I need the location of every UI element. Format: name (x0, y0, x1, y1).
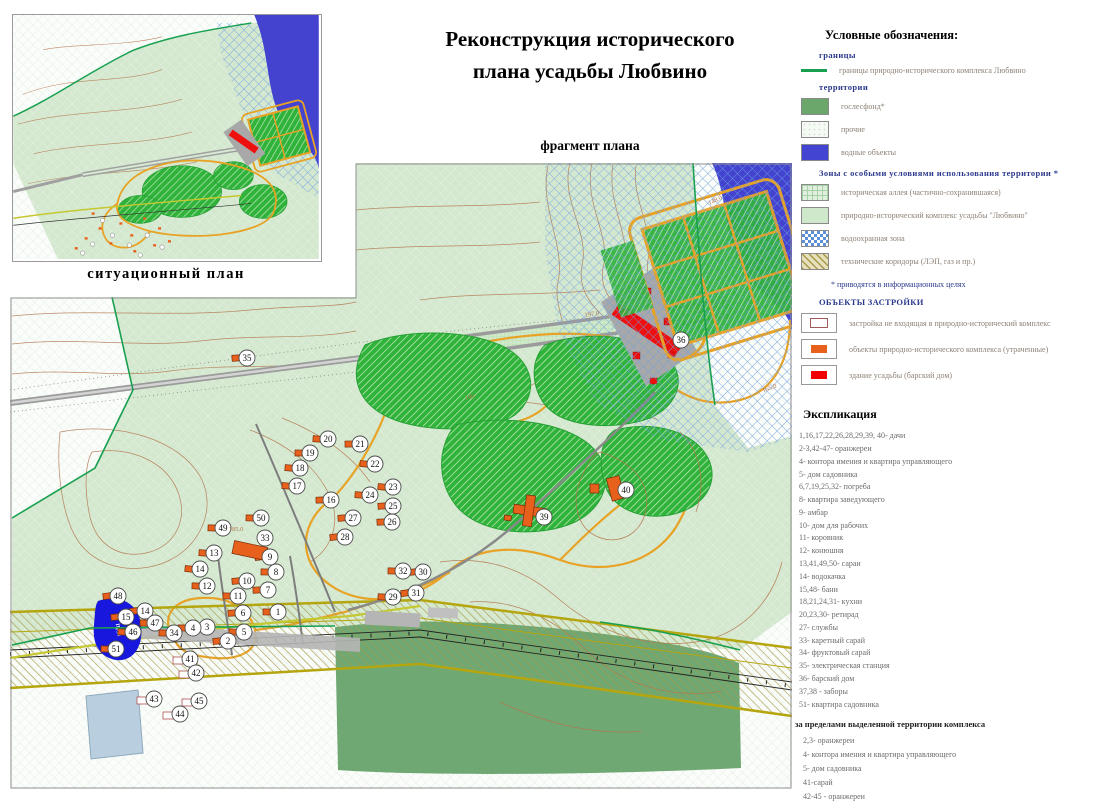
map-marker-1: 1 (270, 604, 286, 620)
map-marker-43: 43 (146, 691, 162, 707)
marker-number: 35 (243, 353, 253, 363)
marker-number: 30 (419, 567, 429, 577)
marker-number: 36 (677, 335, 687, 345)
explication-item: 37,38 - заборы (799, 688, 1097, 696)
legend-item: объекты природно-исторического комплекса… (801, 339, 1097, 359)
marker-number: 40 (622, 485, 632, 495)
legend-section-heading: территории (819, 82, 1097, 92)
marker-number: 13 (210, 548, 220, 558)
legend-section-heading: границы (819, 50, 1097, 60)
marker-number: 3 (205, 622, 210, 632)
marker-number: 17 (293, 481, 303, 491)
map-marker-6: 6 (235, 605, 251, 621)
explication-item: 2-3,42-47- оранжереи (799, 445, 1097, 453)
page-title-line1: Реконструкция исторического (370, 24, 810, 56)
legend-swatch-box-red (801, 365, 837, 385)
marker-number: 16 (327, 495, 337, 505)
map-marker-17: 17 (289, 478, 305, 494)
marker-number: 23 (389, 482, 399, 492)
map-marker-22: 22 (367, 456, 383, 472)
marker-number: 31 (412, 588, 421, 598)
explication-outside-item: 42-45 - оранжереи (803, 793, 1097, 801)
map-marker-42: 42 (188, 665, 204, 681)
marker-number: 11 (234, 591, 243, 601)
map-marker-47: 47 (147, 615, 163, 631)
legend-item: технические коридоры (ЛЭП, газ и пр.) (801, 253, 1097, 270)
legend-item: границы природно-исторического комплекса… (801, 66, 1097, 75)
legend-swatch-box-orange (801, 339, 837, 359)
legend-swatch-inner (810, 318, 828, 328)
legend-swatch-line-green (801, 69, 827, 72)
marker-number: 14 (196, 564, 206, 574)
map-marker-9: 9 (262, 549, 278, 565)
explication-item: 10- дом для рабочих (799, 522, 1097, 530)
legend-item: здание усадьбы (барский дом) (801, 365, 1097, 385)
marker-number: 49 (219, 523, 229, 533)
map-marker-30: 30 (415, 564, 431, 580)
marker-number: 50 (257, 513, 267, 523)
explication-item: 35- электрическая станция (799, 662, 1097, 670)
legend-item: застройка не входящая в природно-историч… (801, 313, 1097, 333)
legend-panel: Условные обозначения: границыграницы при… (795, 28, 1097, 806)
explication-items: 1,16,17,22,26,28,29,39, 40- дачи2-3,42-4… (795, 432, 1097, 709)
marker-number: 6 (241, 608, 246, 618)
marker-number: 8 (274, 567, 279, 577)
legend-swatch-box-outline (801, 313, 837, 333)
legend-item-label: здание усадьбы (барский дом) (849, 371, 952, 380)
page-title-line2: плана усадьбы Любвино (370, 56, 810, 88)
legend-item-label: объекты природно-исторического комплекса… (849, 345, 1048, 354)
map-marker-35: 35 (239, 350, 255, 366)
map-marker-48: 48 (110, 588, 126, 604)
parcel-square (86, 690, 143, 759)
explication-item: 1,16,17,22,26,28,29,39, 40- дачи (799, 432, 1097, 440)
legend-item-label: природно-исторический комплекс усадьбы "… (841, 211, 1028, 220)
legend-note: * приводятся в информационных целях (831, 280, 1097, 289)
explication-item: 20,23,30- ретирад (799, 611, 1097, 619)
page: { "title": {"line1":"Реконструкция истор… (0, 0, 1100, 792)
legend-swatch-hatch-olive (801, 253, 829, 270)
legend-item: водоохранная зона (801, 230, 1097, 247)
legend-swatch-inner (811, 345, 827, 353)
legend-swatch-checker-blue (801, 230, 829, 247)
map-marker-39: 39 (536, 509, 552, 525)
marker-number: 34 (170, 628, 180, 638)
marker-number: 18 (296, 463, 306, 473)
marker-number: 32 (399, 566, 408, 576)
legend-item-label: гослесфонд* (841, 102, 885, 111)
legend-objects-heading: ОБЪЕКТЫ ЗАСТРОЙКИ (819, 297, 1097, 307)
map-marker-28: 28 (337, 529, 353, 545)
contour-label: 185.0 (229, 526, 244, 533)
legend-swatch-grid-lightgreen (801, 184, 829, 201)
marker-number: 24 (366, 490, 376, 500)
map-marker-15: 15 (118, 609, 134, 625)
marker-number: 10 (243, 576, 253, 586)
marker-number: 9 (268, 552, 273, 562)
marker-number: 14 (141, 606, 151, 616)
map-marker-2: 2 (220, 633, 236, 649)
legend-item-label: водные объекты (841, 148, 896, 157)
legend-swatch-solid-blue (801, 144, 829, 161)
map-marker-8: 8 (268, 564, 284, 580)
explication-item: 33- каретный сарай (799, 637, 1097, 645)
marker-number: 42 (192, 668, 201, 678)
marker-number: 29 (389, 592, 399, 602)
legend-item-label: технические коридоры (ЛЭП, газ и пр.) (841, 257, 975, 266)
marker-number: 25 (389, 501, 399, 511)
legend-swatch-dotted-white (801, 121, 829, 138)
map-marker-7: 7 (260, 582, 276, 598)
map-marker-20: 20 (320, 431, 336, 447)
legend-section-heading: Зоны с особыми условиями использования т… (819, 168, 1097, 178)
legend-item: водные объекты (801, 144, 1097, 161)
explication-item: 51- квартира садовника (799, 701, 1097, 709)
map-marker-16: 16 (323, 492, 339, 508)
legend-item-label: застройка не входящая в природно-историч… (849, 319, 1051, 328)
explication-outside-item: 4- контора имения и квартира управляющег… (803, 751, 1097, 759)
marker-number: 1 (276, 607, 281, 617)
map-marker-19: 19 (302, 445, 318, 461)
map-marker-46: 46 (125, 624, 141, 640)
explication-item: 36- барский дом (799, 675, 1097, 683)
explication-item: 6,7,19,25,32- погреба (799, 483, 1097, 491)
main-map: Пруд (10, 163, 792, 789)
marker-number: 46 (129, 627, 139, 637)
explication-item: 13,41,49,50- сараи (799, 560, 1097, 568)
explication-item: 5- дом садовника (799, 471, 1097, 479)
legend-item-label: историческая аллея (частично-сохранившая… (841, 188, 1001, 197)
explication-outside-item: 41-сарай (803, 779, 1097, 787)
marker-number: 28 (341, 532, 351, 542)
map-marker-13: 13 (206, 545, 222, 561)
explication-item: 27- службы (799, 624, 1097, 632)
map-marker-36: 36 (673, 332, 689, 348)
marker-number: 7 (266, 585, 271, 595)
map-marker-31: 31 (408, 585, 424, 601)
legend-objects: застройка не входящая в природно-историч… (795, 313, 1097, 385)
marker-number: 5 (242, 627, 247, 637)
legend-item-label: границы природно-исторического комплекса… (839, 66, 1026, 75)
marker-number: 51 (112, 644, 121, 654)
explication-outside-item: 2,3- оранжереи (803, 737, 1097, 745)
map-marker-5: 5 (236, 624, 252, 640)
fragment-plan-label: фрагмент плана (430, 138, 750, 154)
marker-number: 47 (151, 618, 161, 628)
map-marker-29: 29 (385, 589, 401, 605)
explication-title: Экспликация (803, 407, 1097, 422)
map-marker-27: 27 (345, 510, 361, 526)
map-marker-32: 32 (395, 563, 411, 579)
marker-number: 43 (150, 694, 160, 704)
marker-number: 48 (114, 591, 124, 601)
explication-item: 8- квартира заведующего (799, 496, 1097, 504)
legend-title: Условные обозначения: (825, 28, 1097, 43)
marker-number: 15 (122, 612, 132, 622)
page-title: Реконструкция исторического плана усадьб… (370, 24, 810, 87)
marker-number: 45 (195, 696, 205, 706)
map-marker-21: 21 (352, 436, 368, 452)
map-marker-11: 11 (230, 588, 246, 604)
legend-item: природно-исторический комплекс усадьбы "… (801, 207, 1097, 224)
explication-outside-heading: за пределами выделенной территории компл… (795, 719, 1097, 729)
explication-item: 15,48- бани (799, 586, 1097, 594)
map-marker-4: 4 (185, 620, 201, 636)
explication-item: 4- контора имения и квартира управляющег… (799, 458, 1097, 466)
map-marker-23: 23 (385, 479, 401, 495)
legend-item-label: водоохранная зона (841, 234, 905, 243)
marker-number: 41 (186, 654, 195, 664)
legend-item: прочие (801, 121, 1097, 138)
explication-item: 12- конюшня (799, 547, 1097, 555)
explication-outside-item: 5- дом садовника (803, 765, 1097, 773)
map-marker-33: 33 (257, 530, 273, 546)
explication-item: 11- коровник (799, 534, 1097, 542)
legend-swatch-inner (811, 371, 827, 379)
marker-number: 4 (191, 623, 196, 633)
map-marker-18: 18 (292, 460, 308, 476)
marker-number: 39 (540, 512, 550, 522)
map-marker-34: 34 (166, 625, 182, 641)
map-marker-51: 51 (108, 641, 124, 657)
map-marker-45: 45 (191, 693, 207, 709)
marker-number: 44 (176, 709, 186, 719)
legend-swatch-solid-green (801, 98, 829, 115)
map-marker-10: 10 (239, 573, 255, 589)
explication-item: 18,21,24,31- кухни (799, 598, 1097, 606)
marker-number: 2 (226, 636, 231, 646)
marker-number: 26 (388, 517, 398, 527)
map-marker-25: 25 (385, 498, 401, 514)
legend-item: историческая аллея (частично-сохранившая… (801, 184, 1097, 201)
map-marker-24: 24 (362, 487, 378, 503)
marker-number: 12 (203, 581, 212, 591)
legend-item: гослесфонд* (801, 98, 1097, 115)
explication-outside-items: 2,3- оранжереи4- контора имения и кварти… (795, 737, 1097, 801)
map-marker-50: 50 (253, 510, 269, 526)
map-marker-44: 44 (172, 706, 188, 722)
explication-item: 14- водокачка (799, 573, 1097, 581)
map-marker-3: 3 (199, 619, 215, 635)
legend-sections: границыграницы природно-исторического ко… (795, 50, 1097, 270)
map-marker-26: 26 (384, 514, 400, 530)
marker-number: 20 (324, 434, 334, 444)
explication-item: 34- фруктовый сарай (799, 649, 1097, 657)
marker-number: 27 (349, 513, 359, 523)
legend-item-label: прочие (841, 125, 865, 134)
map-marker-12: 12 (199, 578, 215, 594)
explication-item: 9- амбар (799, 509, 1097, 517)
marker-number: 22 (371, 459, 380, 469)
marker-number: 33 (261, 533, 271, 543)
map-marker-14: 14 (192, 561, 208, 577)
marker-number: 19 (306, 448, 316, 458)
legend-swatch-solid-lightgreen (801, 207, 829, 224)
marker-number: 21 (356, 439, 365, 449)
map-marker-40: 40 (618, 482, 634, 498)
